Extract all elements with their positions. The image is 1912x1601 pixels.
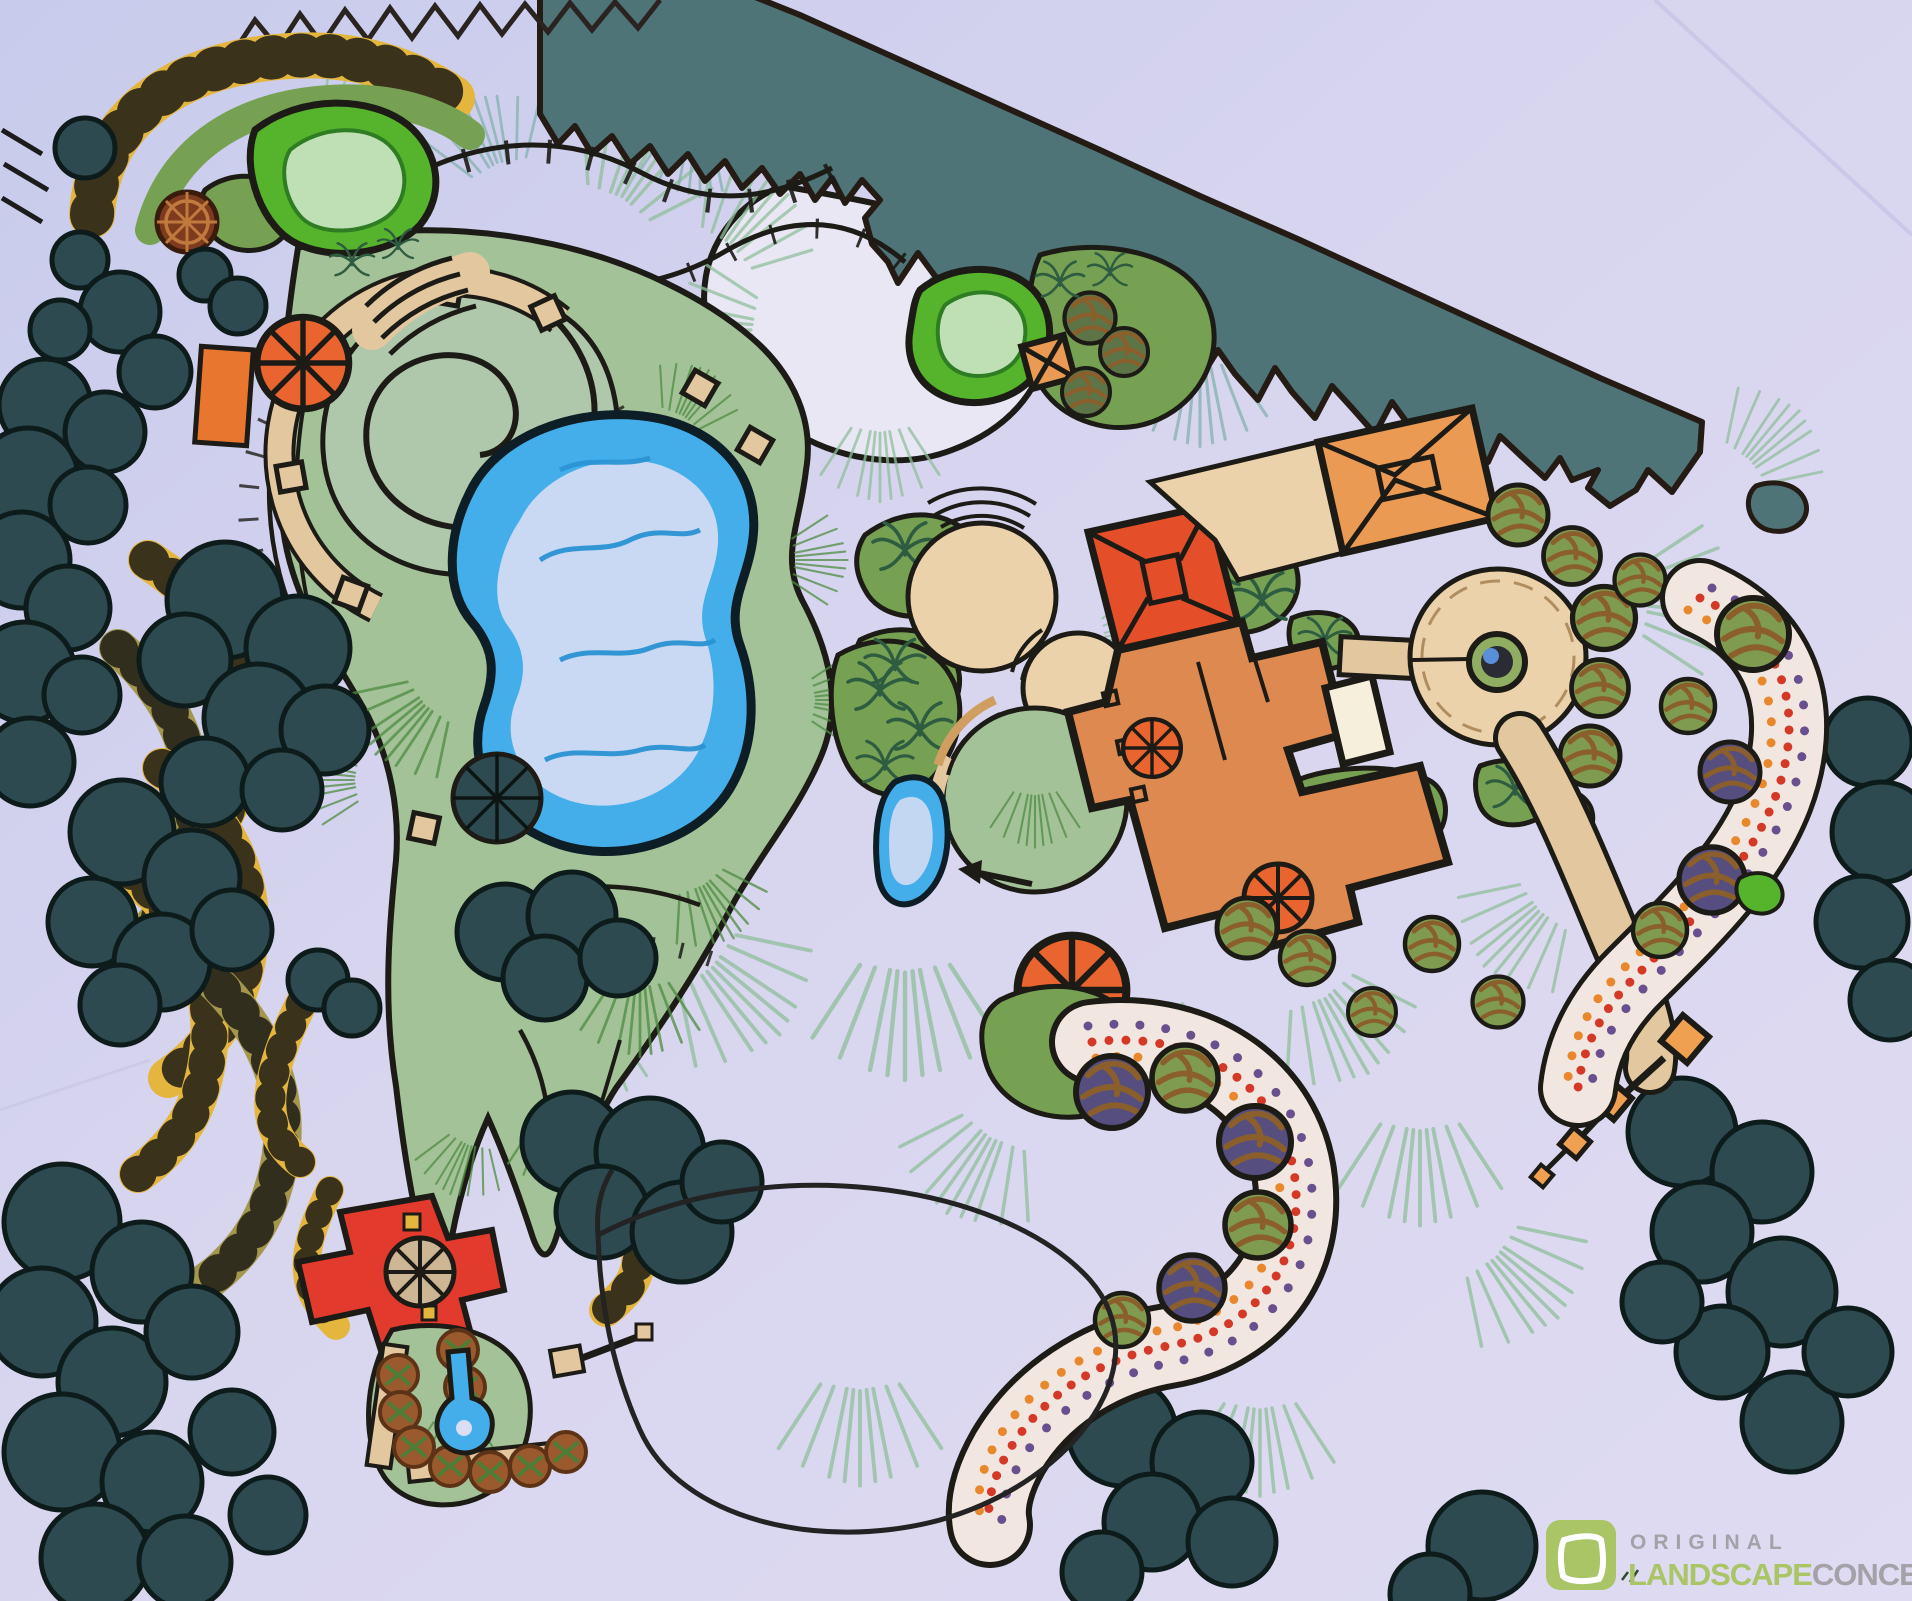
accent-shrub <box>1736 873 1782 913</box>
logo-text-top: ORIGINAL <box>1630 1531 1789 1554</box>
tree-icon <box>1633 903 1687 957</box>
tree-icon <box>1219 1106 1291 1178</box>
tree-icon <box>1159 1255 1225 1321</box>
umbrella-icon <box>1123 719 1181 777</box>
tree-icon <box>1473 977 1524 1028</box>
tree-icon <box>1348 988 1396 1036</box>
lawn-tree <box>453 754 541 842</box>
deck-platform <box>195 346 254 445</box>
tree-icon <box>1661 679 1715 733</box>
umbrella-icon <box>257 317 349 409</box>
tree-icon <box>1280 931 1334 985</box>
tree-icon <box>1152 1045 1218 1111</box>
tree-icon <box>1076 1056 1148 1128</box>
fountain <box>1469 634 1525 690</box>
umbrella-icon <box>386 1238 454 1306</box>
landscape-plan-drawing: ORIGINAL LANDSCAPECONCEPTS <box>0 0 1912 1601</box>
landscape-plan-sheet: ORIGINAL LANDSCAPECONCEPTS <box>0 0 1912 1601</box>
logo-text-main: LANDSCAPECONCEPTS <box>1628 1557 1912 1592</box>
spa-pond <box>876 777 947 904</box>
tree-icon <box>1217 898 1277 958</box>
tree-icon <box>1717 598 1789 670</box>
round-pergola <box>157 192 217 252</box>
tree-icon <box>1062 368 1110 416</box>
practice-green-area <box>909 248 1214 428</box>
tree-icon <box>1700 742 1760 802</box>
tree-icon <box>1100 328 1148 376</box>
tree-icon <box>1679 847 1745 913</box>
tree-icon <box>1405 917 1459 971</box>
treeline-fragment <box>1748 483 1806 532</box>
tree-icon <box>1225 1192 1291 1258</box>
logo-text-concepts: CONCEPTS <box>1812 1557 1912 1592</box>
logo-text-landscape: LANDSCAPE <box>1628 1557 1812 1592</box>
